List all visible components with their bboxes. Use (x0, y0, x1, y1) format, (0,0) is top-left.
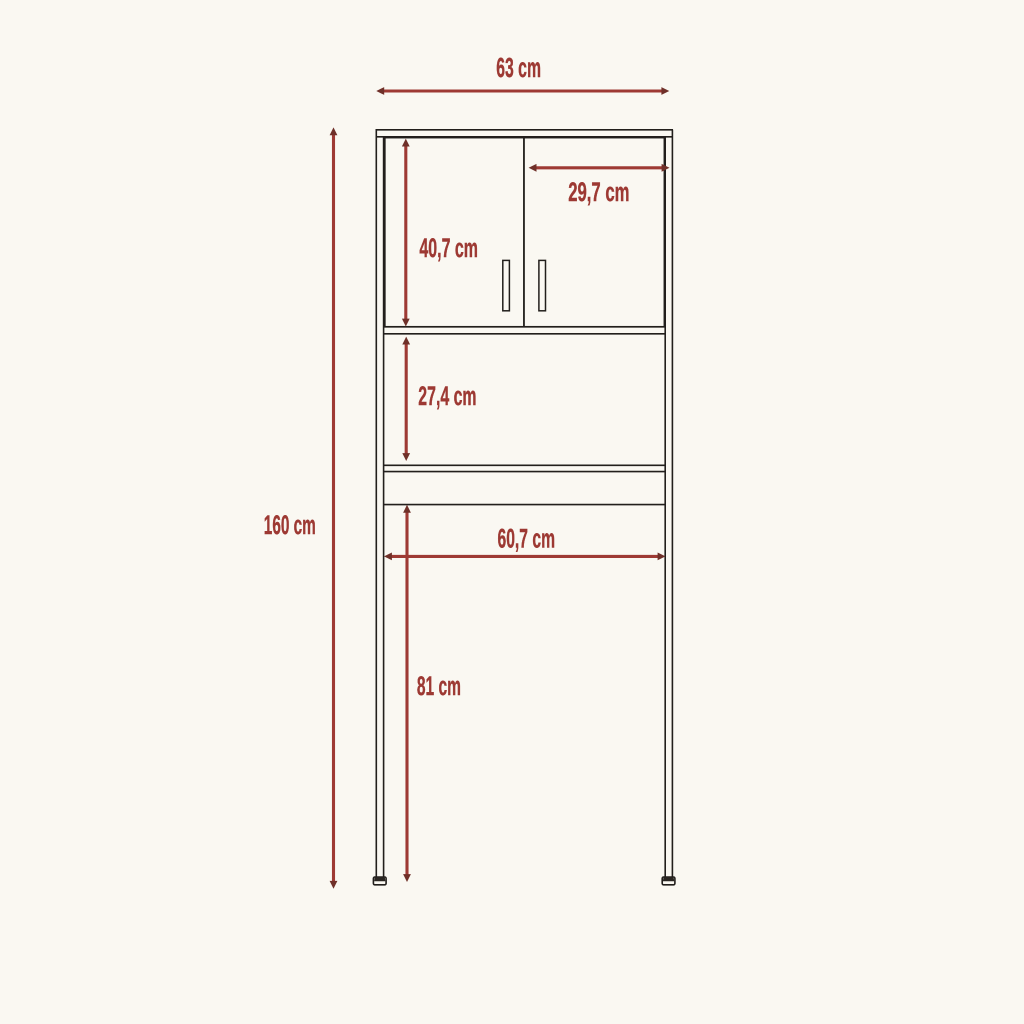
svg-text:63 cm: 63 cm (496, 52, 541, 83)
svg-text:40,7 cm: 40,7 cm (419, 233, 478, 263)
svg-text:27,4 cm: 27,4 cm (418, 381, 476, 411)
svg-text:60,7 cm: 60,7 cm (498, 523, 556, 553)
svg-text:81 cm: 81 cm (417, 671, 461, 701)
svg-text:160 cm: 160 cm (264, 510, 316, 540)
svg-text:29,7 cm: 29,7 cm (568, 177, 629, 207)
